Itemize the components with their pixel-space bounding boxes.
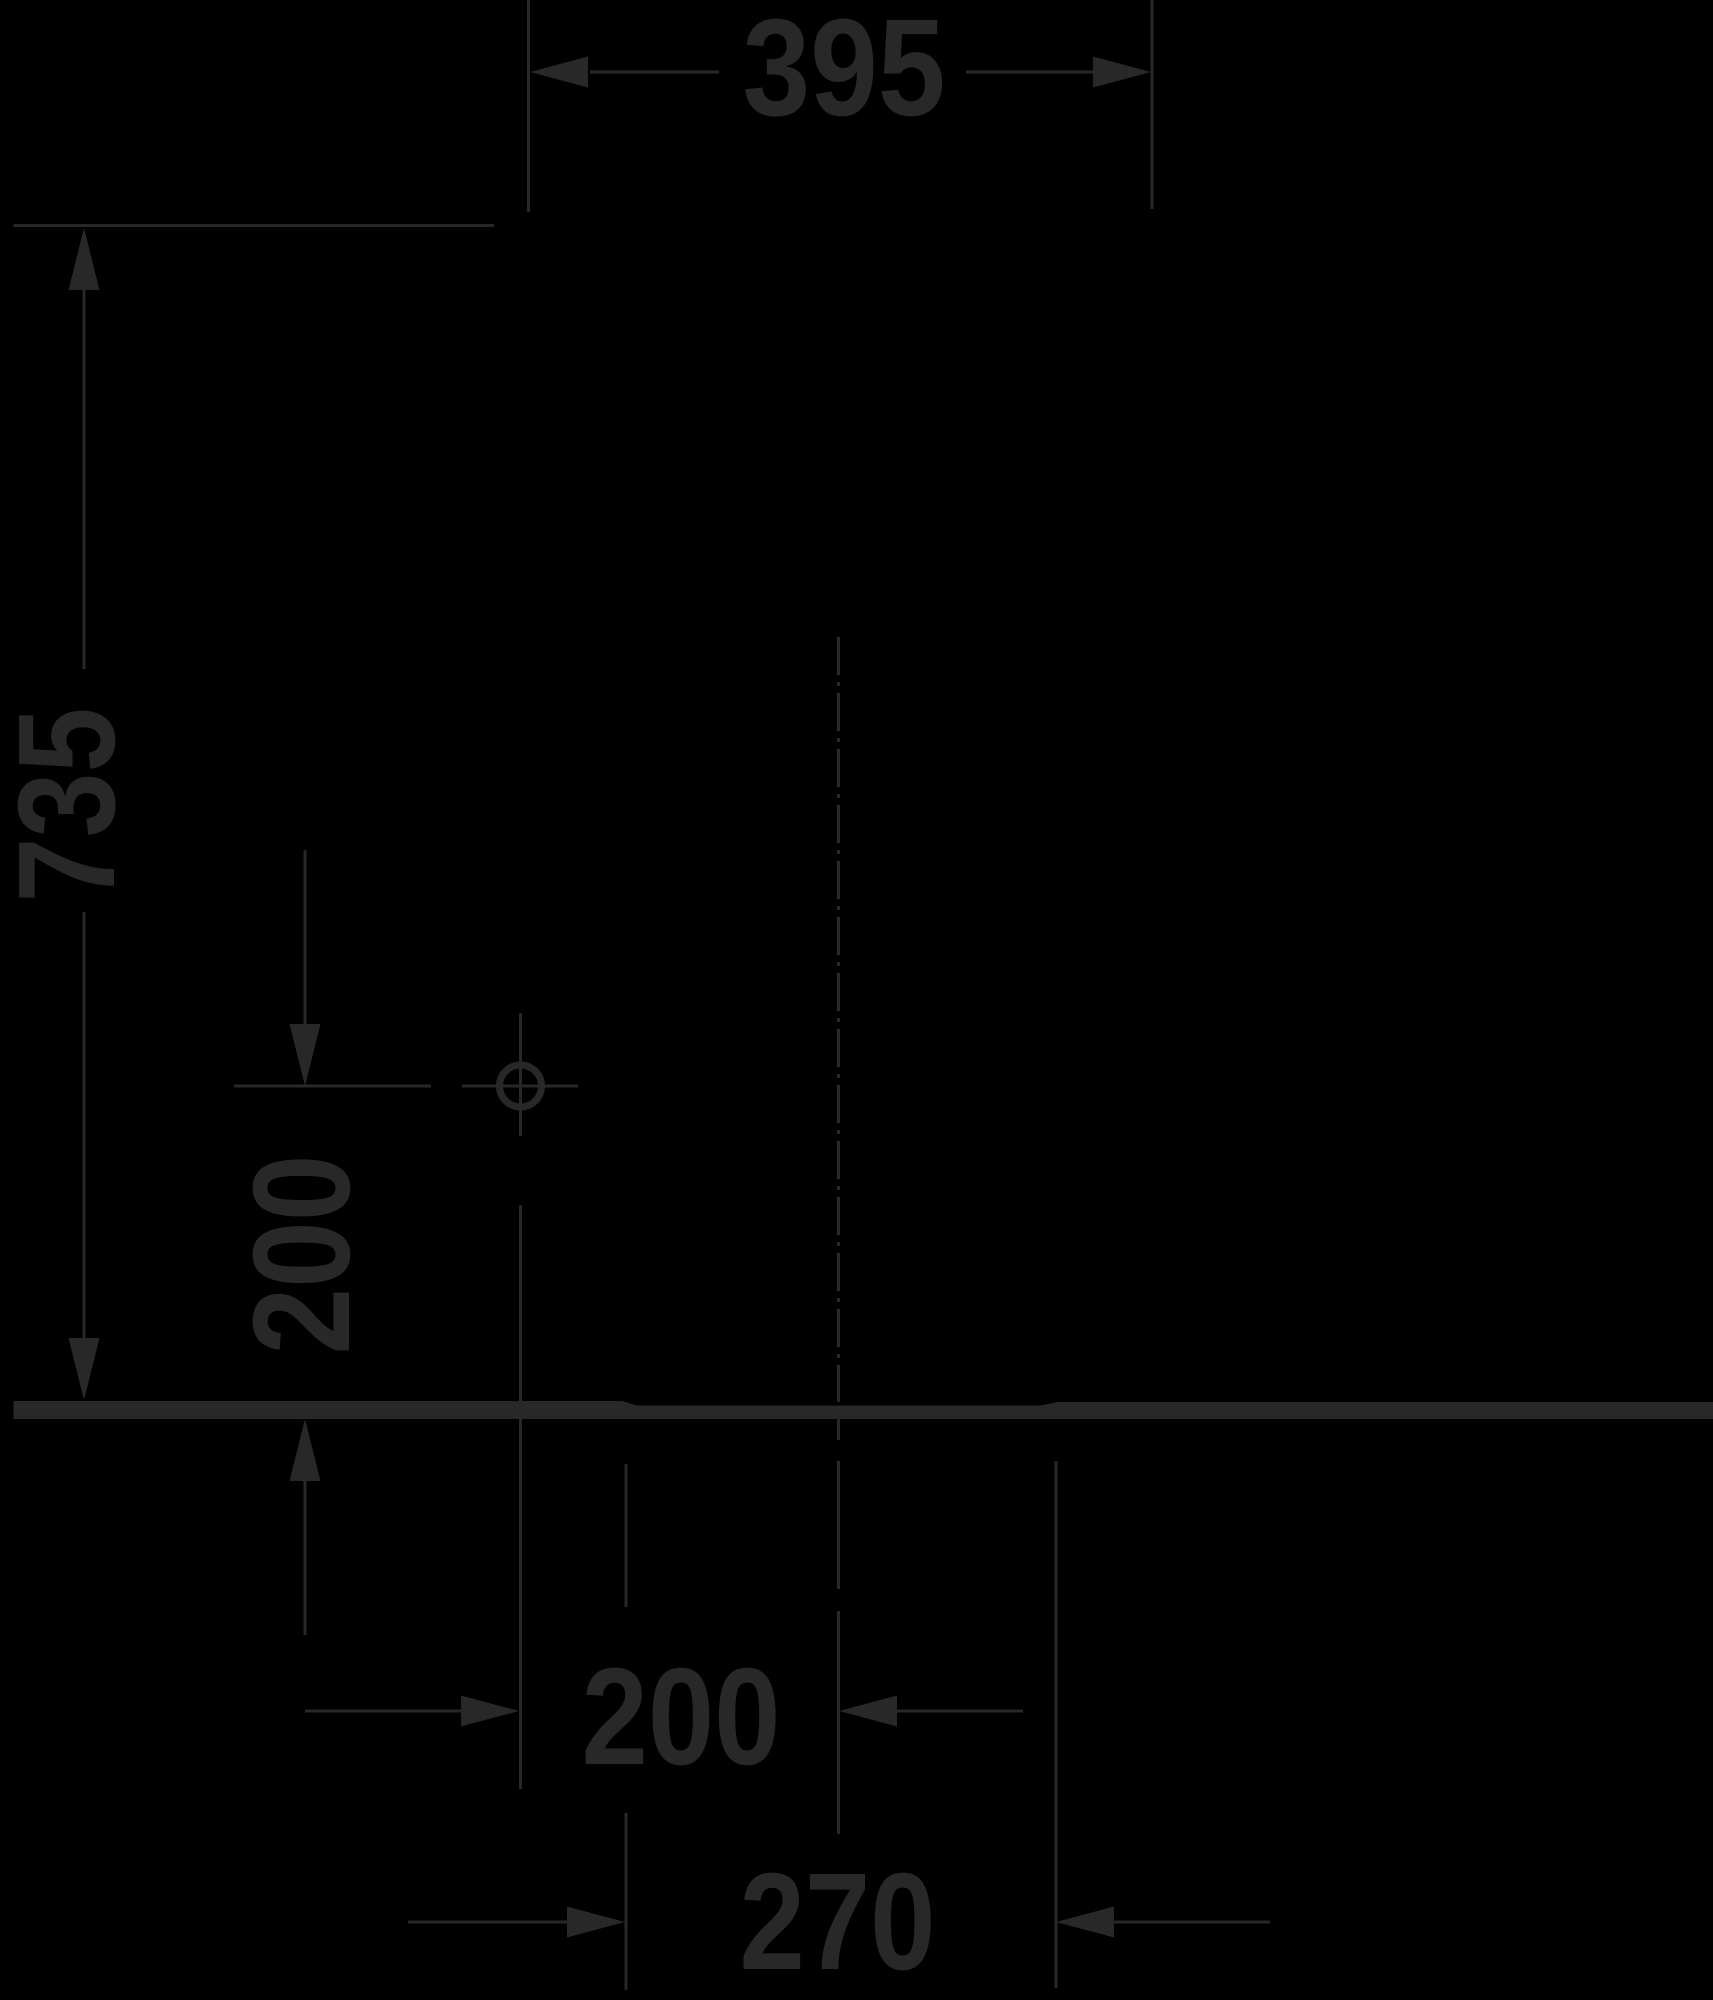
svg-text:735: 735 (0, 708, 144, 903)
svg-text:200: 200 (225, 1155, 379, 1355)
svg-text:395: 395 (743, 0, 946, 145)
svg-text:200: 200 (582, 1640, 781, 1794)
svg-text:270: 270 (740, 1845, 936, 1999)
